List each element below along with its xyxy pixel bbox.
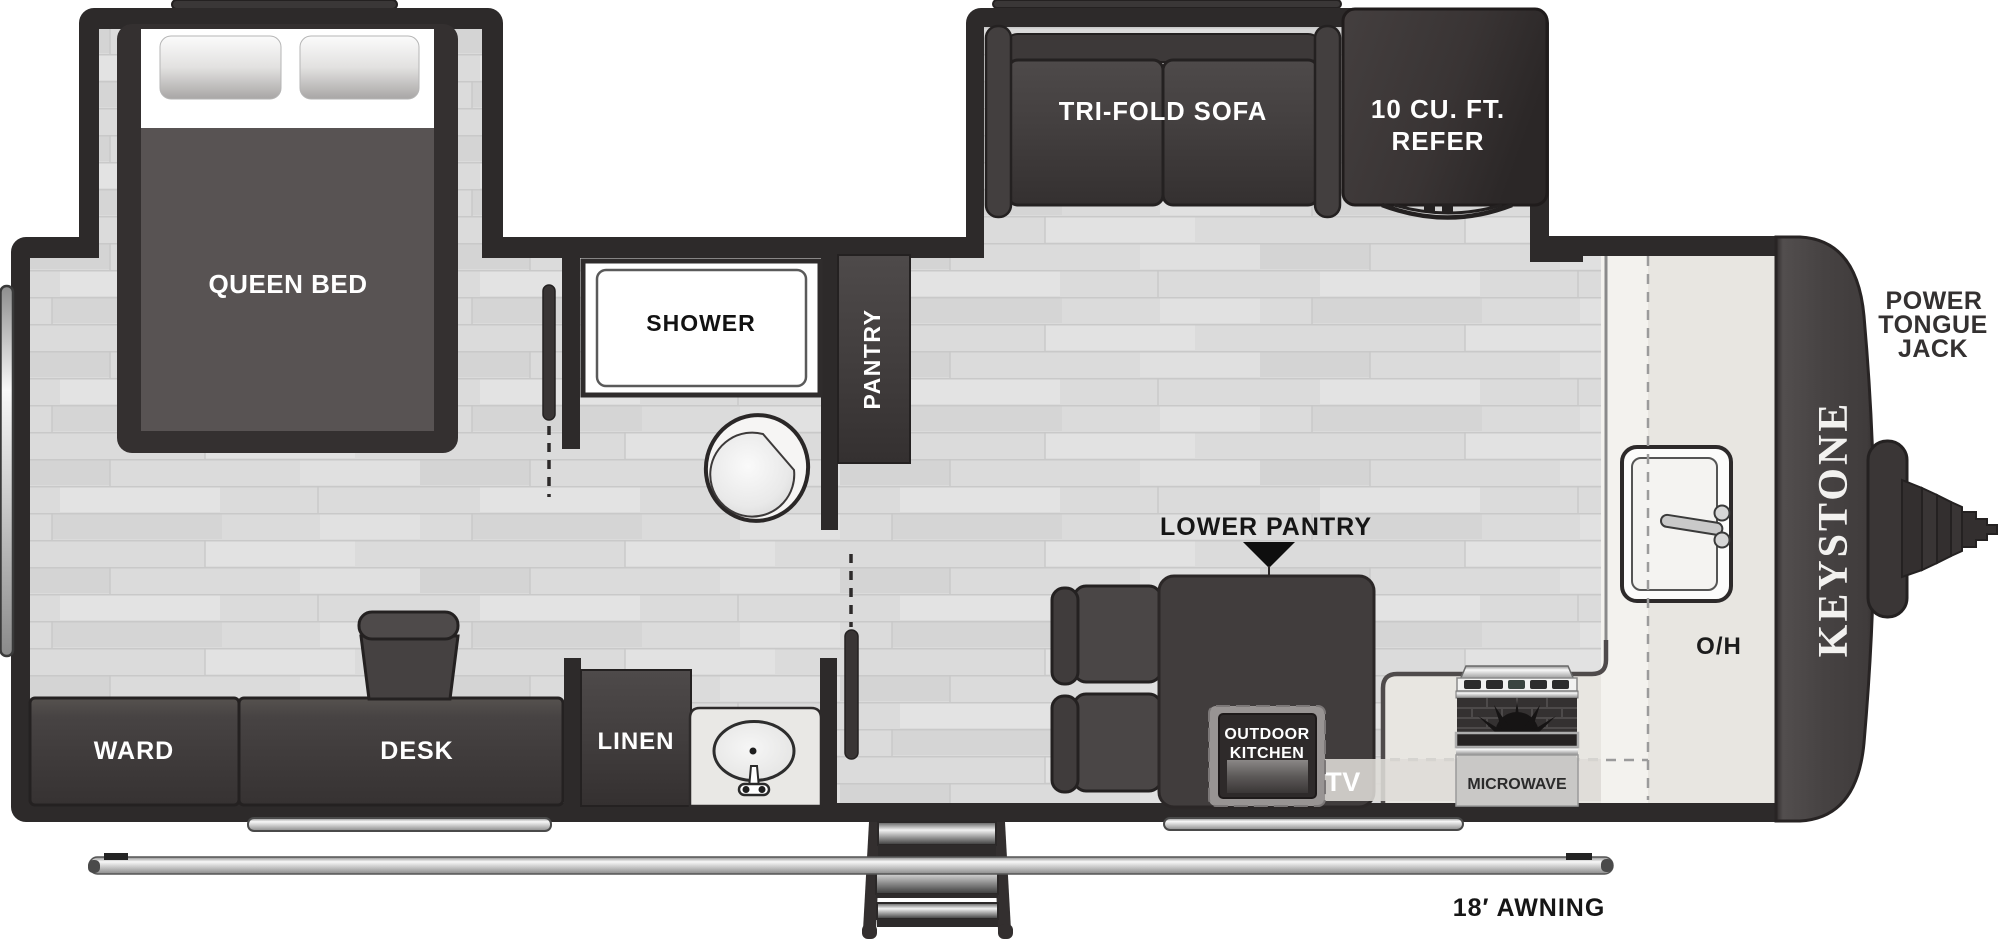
svg-text:KEYSTONE: KEYSTONE	[1811, 401, 1857, 658]
svg-text:LINEN: LINEN	[598, 728, 675, 755]
svg-text:JACK: JACK	[1898, 335, 1968, 363]
svg-text:MICROWAVE: MICROWAVE	[1467, 776, 1567, 793]
svg-text:PANTRY: PANTRY	[859, 309, 885, 410]
svg-text:DESK: DESK	[380, 737, 453, 765]
svg-text:QUEEN BED: QUEEN BED	[208, 269, 367, 299]
svg-text:LOWER PANTRY: LOWER PANTRY	[1160, 513, 1372, 541]
svg-text:KITCHEN: KITCHEN	[1230, 745, 1305, 762]
svg-text:10 CU. FT.: 10 CU. FT.	[1371, 94, 1505, 124]
svg-text:TV: TV	[1325, 767, 1361, 797]
svg-text:REFER: REFER	[1391, 126, 1484, 156]
svg-text:WARD: WARD	[94, 737, 174, 765]
svg-text:TRI-FOLD SOFA: TRI-FOLD SOFA	[1059, 98, 1267, 126]
svg-text:SHOWER: SHOWER	[646, 310, 756, 336]
svg-text:OUTDOOR: OUTDOOR	[1224, 726, 1309, 743]
svg-text:O/H: O/H	[1696, 633, 1742, 660]
svg-text:18′ AWNING: 18′ AWNING	[1453, 894, 1606, 922]
